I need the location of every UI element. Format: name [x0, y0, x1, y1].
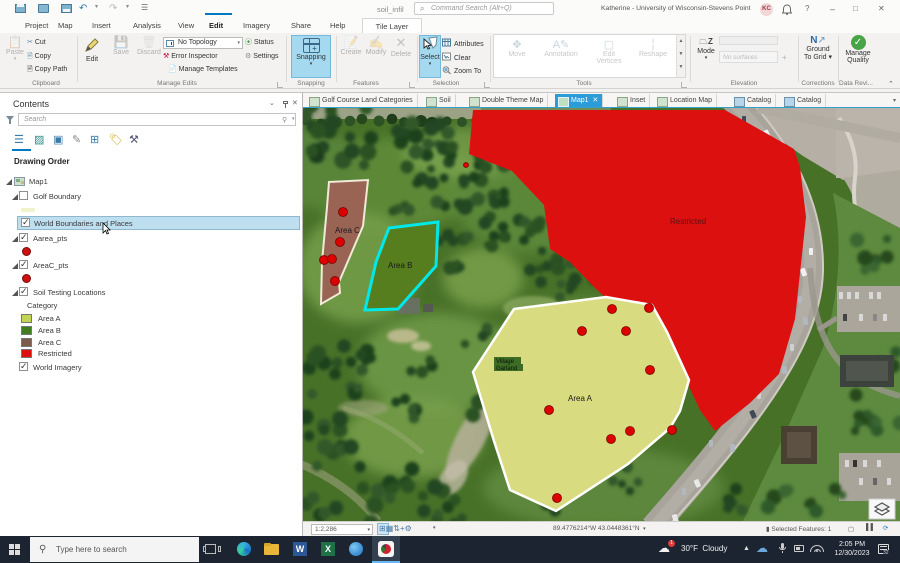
svg-text:Restricted: Restricted: [670, 217, 706, 226]
svg-text:Area C: Area C: [335, 226, 360, 235]
svg-text:Garland: Garland: [496, 366, 517, 372]
svg-text:Area A: Area A: [568, 394, 593, 403]
svg-text:Village: Village: [496, 359, 515, 365]
svg-text:Area B: Area B: [388, 261, 412, 270]
